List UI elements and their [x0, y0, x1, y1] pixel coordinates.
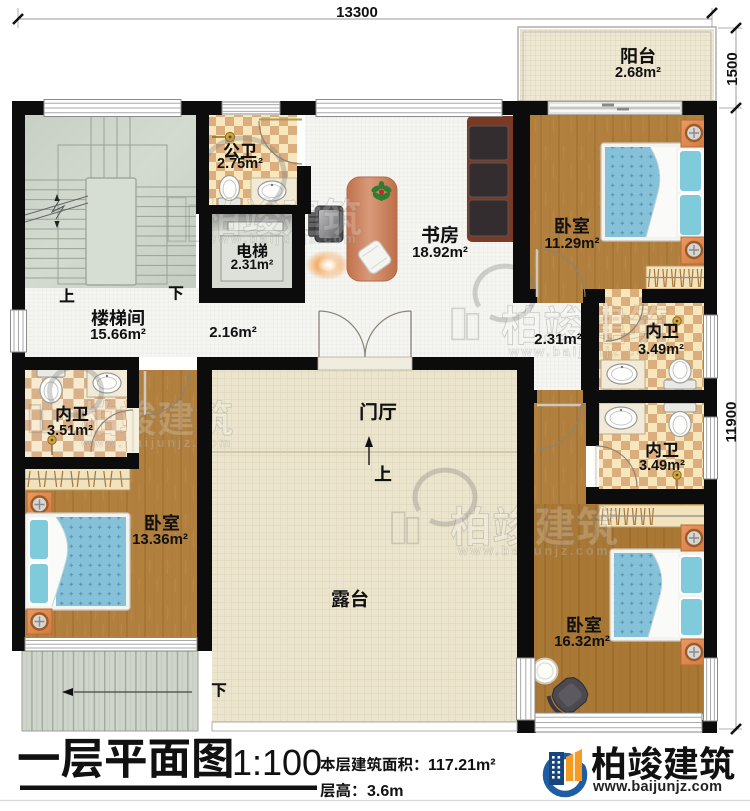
svg-text:117.21m²: 117.21m² — [428, 757, 496, 774]
svg-text:16.32m²: 16.32m² — [554, 633, 610, 650]
svg-text:13.36m²: 13.36m² — [132, 531, 188, 548]
svg-text:1:100: 1:100 — [232, 742, 322, 783]
svg-text:15.66m²: 15.66m² — [90, 326, 146, 343]
svg-text:2.68m²: 2.68m² — [615, 65, 661, 81]
svg-text:2.16m²: 2.16m² — [209, 324, 257, 341]
svg-text:2.31m²: 2.31m² — [231, 257, 274, 272]
svg-text:11900: 11900 — [723, 402, 740, 443]
svg-text:www.baijunjz.com: www.baijunjz.com — [205, 231, 358, 246]
svg-text:11.29m²: 11.29m² — [544, 235, 599, 252]
svg-text:3.51m²: 3.51m² — [47, 423, 93, 439]
svg-text:18.92m²: 18.92m² — [412, 244, 468, 261]
svg-text:1500: 1500 — [724, 52, 741, 85]
svg-text:13300: 13300 — [336, 4, 378, 21]
svg-text:www.baijunjz.com: www.baijunjz.com — [592, 779, 723, 795]
svg-text:3.49m²: 3.49m² — [638, 342, 684, 358]
svg-text:2.31m²: 2.31m² — [534, 331, 582, 348]
svg-text:3.49m²: 3.49m² — [639, 458, 685, 474]
svg-text:3.6m: 3.6m — [367, 783, 403, 800]
svg-text:2.75m²: 2.75m² — [217, 156, 263, 172]
